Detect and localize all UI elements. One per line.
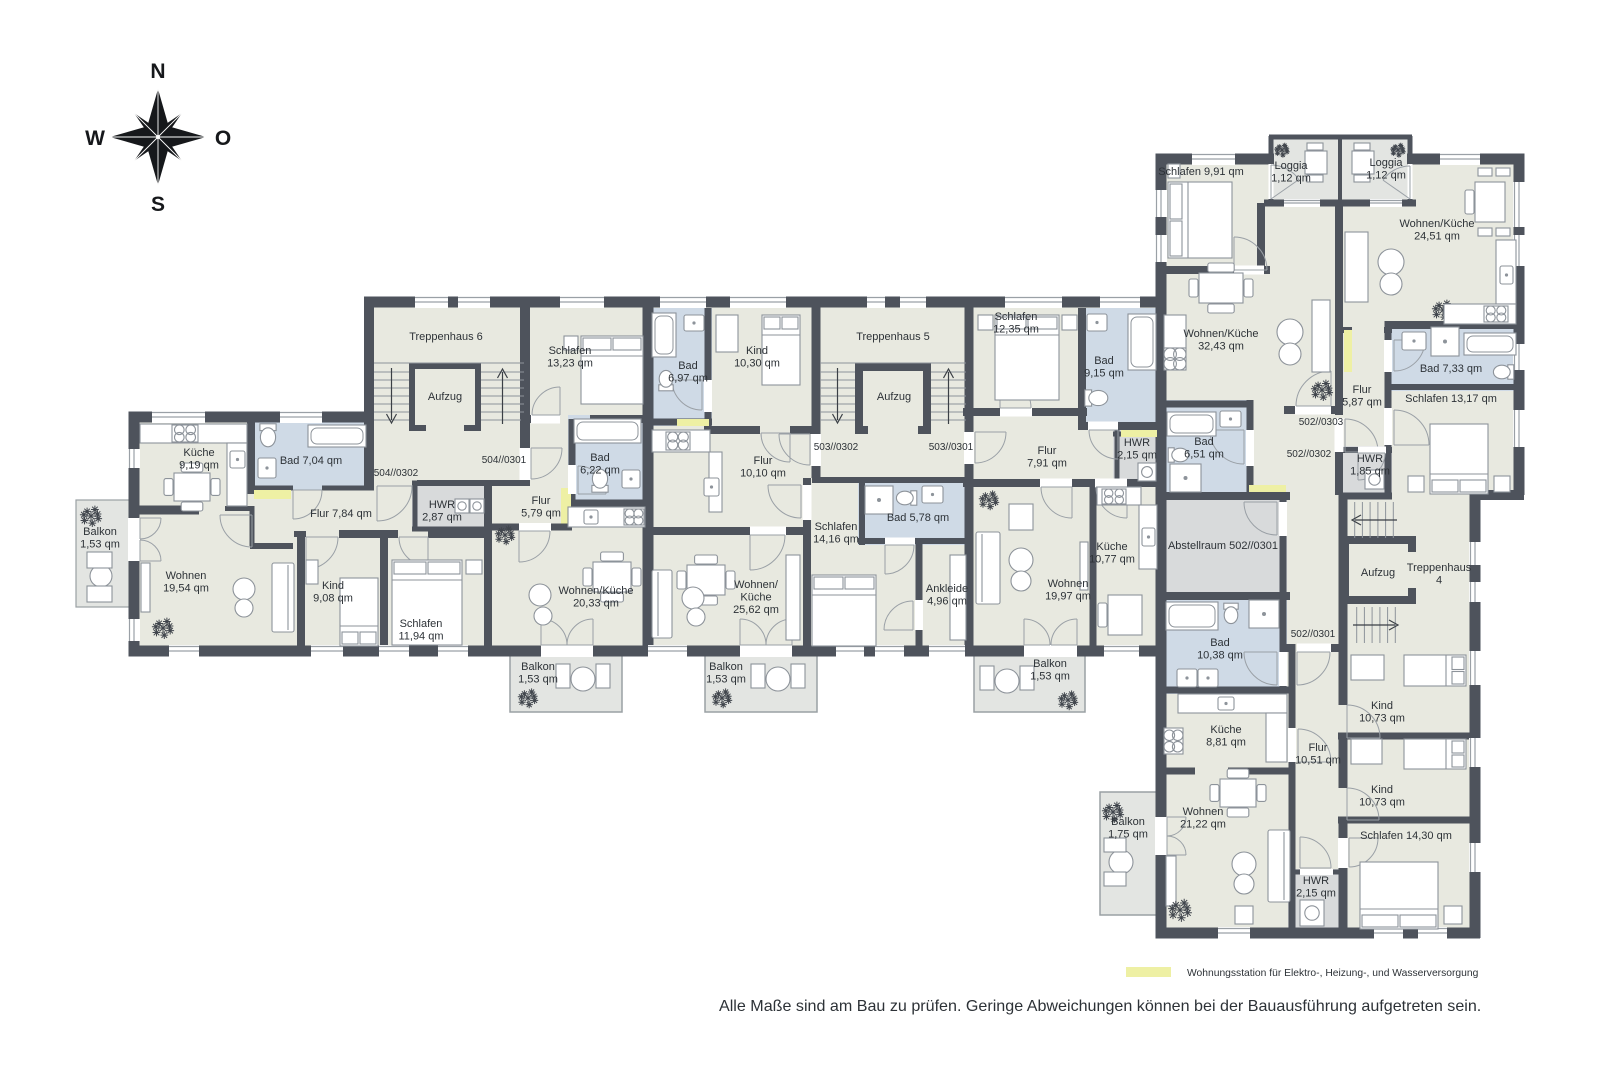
svg-text:Wohnen: Wohnen — [1048, 578, 1089, 590]
svg-text:Kind: Kind — [1371, 700, 1393, 712]
svg-text:Küche: Küche — [183, 447, 214, 459]
svg-text:Schlafen 14,30 qm: Schlafen 14,30 qm — [1360, 830, 1452, 842]
svg-text:1,53 qm: 1,53 qm — [706, 674, 746, 686]
svg-text:Treppenhaus 5: Treppenhaus 5 — [856, 331, 930, 343]
svg-text:Kind: Kind — [746, 345, 768, 357]
svg-text:Bad 7,33 qm: Bad 7,33 qm — [1420, 363, 1482, 375]
svg-text:32,43 qm: 32,43 qm — [1198, 341, 1244, 353]
svg-text:Loggia: Loggia — [1274, 160, 1308, 172]
svg-text:Wohnen/Küche: Wohnen/Küche — [1399, 218, 1474, 230]
svg-text:Wohnen/: Wohnen/ — [734, 579, 779, 591]
svg-text:21,22 qm: 21,22 qm — [1180, 819, 1226, 831]
svg-text:Schlafen: Schlafen — [995, 311, 1038, 323]
svg-text:Balkon: Balkon — [709, 661, 743, 673]
svg-text:Wohnen: Wohnen — [1183, 806, 1224, 818]
svg-text:Balkon: Balkon — [521, 661, 555, 673]
svg-text:N: N — [150, 60, 165, 83]
svg-text:9,19 qm: 9,19 qm — [179, 460, 219, 472]
svg-text:13,23 qm: 13,23 qm — [547, 358, 593, 370]
svg-text:Bad: Bad — [1194, 436, 1214, 448]
svg-text:2,15 qm: 2,15 qm — [1117, 450, 1157, 462]
svg-text:10,38 qm: 10,38 qm — [1197, 650, 1243, 662]
svg-text:7,91 qm: 7,91 qm — [1027, 458, 1067, 470]
svg-text:5,79 qm: 5,79 qm — [521, 508, 561, 520]
svg-text:502//0303: 502//0303 — [1299, 417, 1344, 428]
svg-text:10,77 qm: 10,77 qm — [1089, 554, 1135, 566]
svg-text:Abstellraum 502//0301: Abstellraum 502//0301 — [1168, 540, 1278, 552]
svg-text:4: 4 — [1436, 575, 1442, 587]
svg-text:Bad 5,78 qm: Bad 5,78 qm — [887, 512, 949, 524]
svg-text:10,30 qm: 10,30 qm — [734, 358, 780, 370]
svg-text:HWR: HWR — [429, 499, 455, 511]
svg-text:O: O — [215, 127, 231, 150]
svg-text:502//0301: 502//0301 — [1291, 629, 1336, 640]
svg-text:Balkon: Balkon — [83, 526, 117, 538]
svg-text:Balkon: Balkon — [1111, 816, 1145, 828]
svg-text:Schlafen: Schlafen — [400, 618, 443, 630]
svg-text:503//0302: 503//0302 — [814, 442, 859, 453]
svg-text:Flur: Flur — [1309, 742, 1328, 754]
svg-text:Schlafen 13,17 qm: Schlafen 13,17 qm — [1405, 393, 1497, 405]
svg-text:S: S — [151, 193, 165, 216]
svg-text:Küche: Küche — [740, 592, 771, 604]
svg-text:5,87 qm: 5,87 qm — [1342, 397, 1382, 409]
svg-text:1,12 qm: 1,12 qm — [1366, 170, 1406, 182]
svg-text:Küche: Küche — [1096, 541, 1127, 553]
svg-text:Bad: Bad — [1094, 355, 1114, 367]
svg-text:14,16 qm: 14,16 qm — [813, 534, 859, 546]
svg-text:10,73 qm: 10,73 qm — [1359, 713, 1405, 725]
svg-text:Treppenhaus 6: Treppenhaus 6 — [409, 331, 483, 343]
svg-text:8,81 qm: 8,81 qm — [1206, 737, 1246, 749]
svg-text:502//0302: 502//0302 — [1287, 449, 1332, 460]
svg-text:HWR: HWR — [1124, 437, 1150, 449]
svg-text:9,08 qm: 9,08 qm — [313, 593, 353, 605]
svg-text:19,97 qm: 19,97 qm — [1045, 591, 1091, 603]
svg-text:25,62 qm: 25,62 qm — [733, 604, 779, 616]
svg-text:6,51 qm: 6,51 qm — [1184, 449, 1224, 461]
svg-text:Bad: Bad — [678, 360, 698, 372]
svg-text:Wohnen/Küche: Wohnen/Küche — [1183, 328, 1258, 340]
svg-text:1,53 qm: 1,53 qm — [1030, 671, 1070, 683]
svg-text:10,51 qm: 10,51 qm — [1295, 755, 1341, 767]
svg-text:10,10 qm: 10,10 qm — [740, 468, 786, 480]
svg-text:6,22 qm: 6,22 qm — [580, 465, 620, 477]
svg-text:Schlafen: Schlafen — [549, 345, 592, 357]
svg-text:Flur: Flur — [754, 455, 773, 467]
svg-text:W: W — [85, 127, 105, 150]
svg-text:Flur: Flur — [1353, 384, 1372, 396]
svg-text:Ankleide: Ankleide — [926, 583, 968, 595]
svg-text:504//0301: 504//0301 — [482, 455, 527, 466]
svg-text:19,54 qm: 19,54 qm — [163, 583, 209, 595]
svg-text:Aufzug: Aufzug — [1361, 567, 1395, 579]
svg-text:504//0302: 504//0302 — [374, 468, 419, 479]
svg-text:Balkon: Balkon — [1033, 658, 1067, 670]
svg-text:24,51 qm: 24,51 qm — [1414, 231, 1460, 243]
svg-text:4,96 qm: 4,96 qm — [927, 596, 967, 608]
svg-text:Küche: Küche — [1210, 724, 1241, 736]
svg-text:Aufzug: Aufzug — [428, 391, 462, 403]
svg-text:HWR: HWR — [1357, 453, 1383, 465]
svg-text:Aufzug: Aufzug — [877, 391, 911, 403]
svg-text:Kind: Kind — [322, 580, 344, 592]
svg-text:Wohnen/Küche: Wohnen/Küche — [558, 585, 633, 597]
svg-text:20,33 qm: 20,33 qm — [573, 598, 619, 610]
svg-text:Wohnungsstation für Elektro-,: Wohnungsstation für Elektro-, Heizung-, … — [1187, 968, 1479, 979]
svg-text:6,97 qm: 6,97 qm — [668, 373, 708, 385]
svg-text:1,53 qm: 1,53 qm — [80, 539, 120, 551]
svg-text:Treppenhaus: Treppenhaus — [1407, 562, 1472, 574]
svg-text:Bad: Bad — [1210, 637, 1230, 649]
svg-text:2,87 qm: 2,87 qm — [422, 512, 462, 524]
svg-text:1,53 qm: 1,53 qm — [518, 674, 558, 686]
svg-text:HWR: HWR — [1303, 875, 1329, 887]
svg-text:Kind: Kind — [1371, 784, 1393, 796]
svg-text:Bad 7,04 qm: Bad 7,04 qm — [280, 455, 342, 467]
svg-text:1,85 qm: 1,85 qm — [1350, 466, 1390, 478]
svg-text:1,12 qm: 1,12 qm — [1271, 173, 1311, 185]
svg-text:9,15 qm: 9,15 qm — [1084, 368, 1124, 380]
svg-text:Flur: Flur — [532, 495, 551, 507]
svg-text:Loggia: Loggia — [1369, 157, 1403, 169]
svg-text:Flur: Flur — [1038, 445, 1057, 457]
svg-text:2,15 qm: 2,15 qm — [1296, 888, 1336, 900]
svg-text:Schlafen: Schlafen — [815, 521, 858, 533]
svg-text:Alle Maße sind am Bau zu prüfe: Alle Maße sind am Bau zu prüfen. Geringe… — [719, 997, 1481, 1015]
svg-text:503//0301: 503//0301 — [929, 442, 974, 453]
svg-text:Bad: Bad — [590, 452, 610, 464]
svg-text:1,75 qm: 1,75 qm — [1108, 829, 1148, 841]
svg-text:Wohnen: Wohnen — [166, 570, 207, 582]
svg-text:10,73 qm: 10,73 qm — [1359, 797, 1405, 809]
svg-text:Schlafen 9,91 qm: Schlafen 9,91 qm — [1158, 166, 1244, 178]
svg-text:11,94 qm: 11,94 qm — [398, 631, 443, 643]
svg-text:12,35 qm: 12,35 qm — [993, 324, 1039, 336]
svg-text:Flur 7,84 qm: Flur 7,84 qm — [310, 508, 372, 520]
